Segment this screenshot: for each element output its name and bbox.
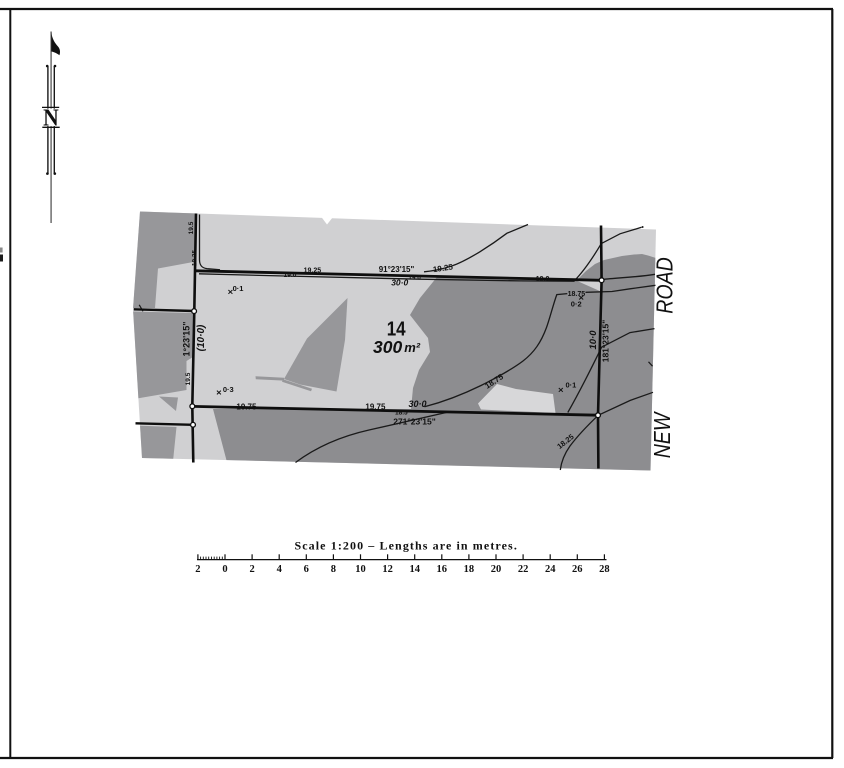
svg-text:26: 26 — [572, 564, 583, 575]
svg-text:18.75: 18.75 — [568, 291, 586, 298]
svg-text:0·1: 0·1 — [233, 284, 244, 293]
svg-text:19.25: 19.25 — [304, 268, 322, 275]
svg-text:19.0: 19.0 — [284, 272, 297, 279]
svg-text:30·0: 30·0 — [391, 278, 408, 288]
svg-text:19.5: 19.5 — [185, 372, 192, 385]
svg-text:0·2: 0·2 — [571, 299, 582, 308]
svg-text:2: 2 — [249, 564, 254, 575]
svg-text:22: 22 — [518, 564, 529, 575]
svg-text:19.75: 19.75 — [365, 403, 386, 412]
svg-text:16: 16 — [437, 564, 448, 575]
svg-text:10·0: 10·0 — [588, 330, 599, 350]
svg-text:1°23'15": 1°23'15" — [182, 321, 192, 356]
svg-text:0·1: 0·1 — [566, 381, 577, 390]
svg-text:2: 2 — [195, 564, 200, 575]
svg-text:24: 24 — [545, 564, 556, 575]
svg-text:28: 28 — [599, 564, 610, 575]
svg-text:30·0: 30·0 — [408, 399, 426, 409]
svg-text:ROAD: ROAD — [652, 257, 678, 313]
svg-text:14: 14 — [409, 564, 420, 575]
svg-text:NEW: NEW — [650, 411, 676, 458]
svg-text:12: 12 — [382, 564, 393, 575]
svg-text:181°23'15": 181°23'15" — [600, 320, 610, 363]
svg-text:0: 0 — [222, 564, 227, 575]
svg-text:19.25: 19.25 — [192, 249, 199, 266]
svg-text:300m²: 300m² — [373, 337, 421, 357]
svg-text:Scale 1:200 – Lengths are in m: Scale 1:200 – Lengths are in metres. — [294, 538, 517, 552]
svg-text:271°23'15": 271°23'15" — [393, 417, 436, 427]
svg-text:18: 18 — [464, 564, 475, 575]
svg-text:19.0: 19.0 — [536, 276, 550, 283]
svg-text:91°23'15": 91°23'15" — [379, 265, 415, 274]
svg-text:4: 4 — [277, 564, 283, 575]
svg-text:10: 10 — [355, 564, 366, 575]
svg-text:6: 6 — [304, 564, 309, 575]
svg-text:N: N — [43, 104, 59, 130]
svg-text:0·3: 0·3 — [223, 385, 234, 394]
svg-text:19.0: 19.0 — [408, 274, 421, 281]
svg-text:20: 20 — [491, 564, 502, 575]
svg-text:19.5: 19.5 — [188, 221, 195, 234]
svg-text:19.75: 19.75 — [236, 402, 257, 411]
svg-text:8: 8 — [331, 564, 336, 575]
svg-text:(10·0): (10·0) — [196, 324, 207, 351]
